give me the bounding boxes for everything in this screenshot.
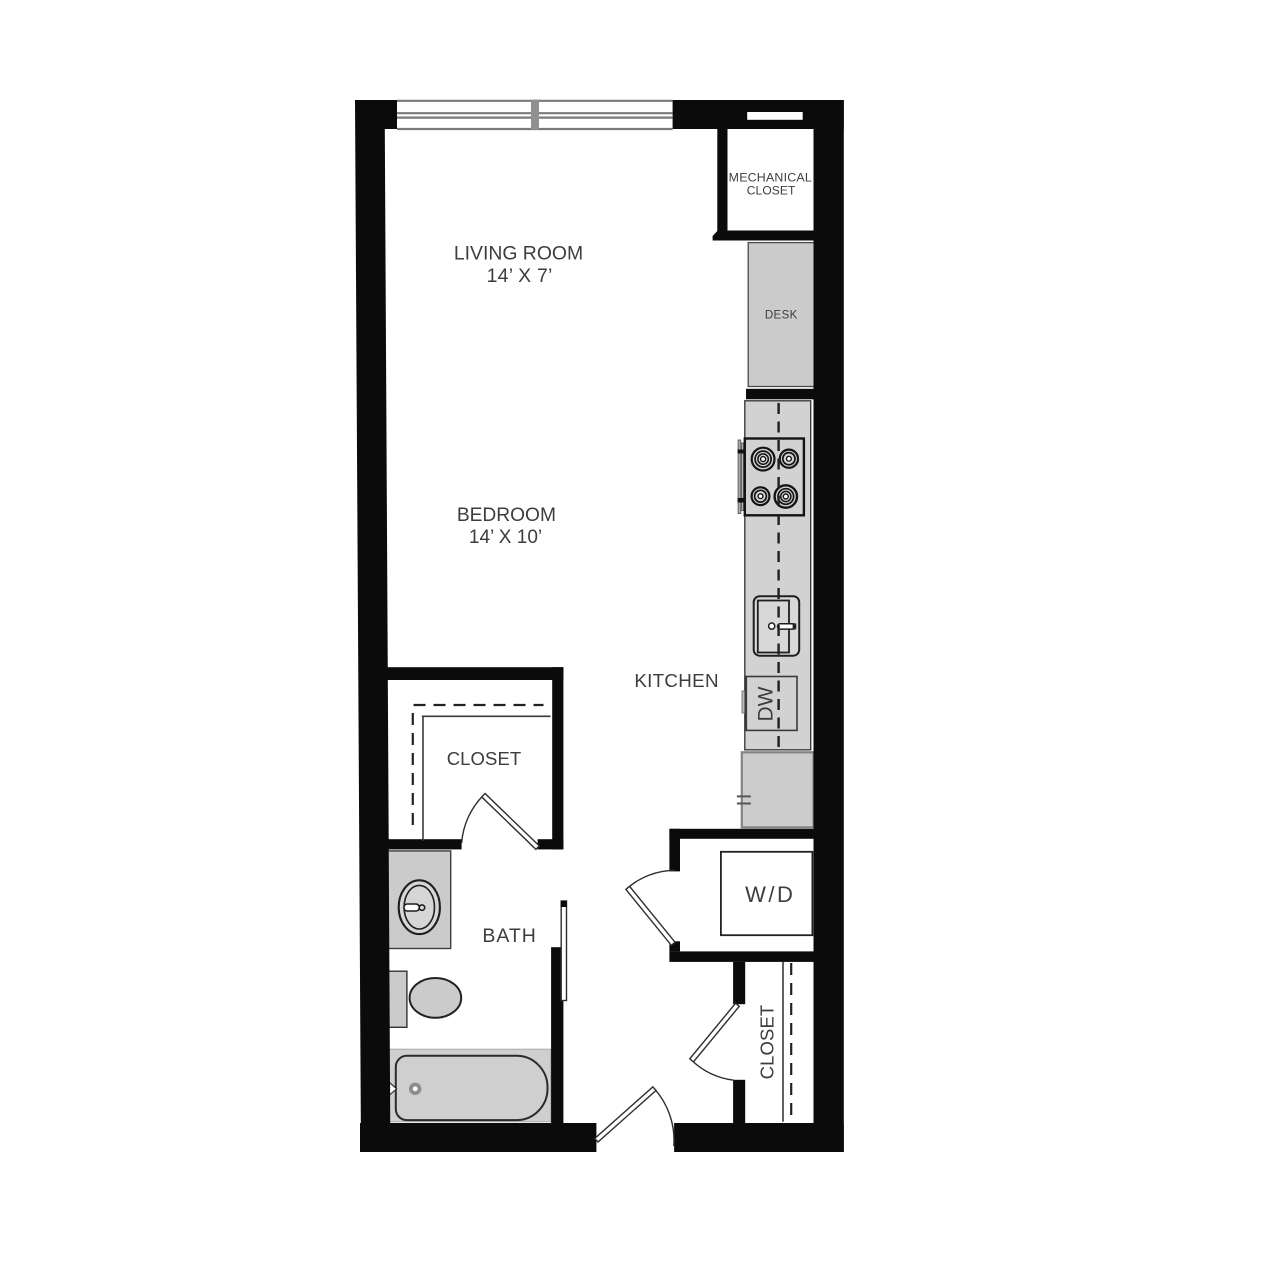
svg-text:KITCHEN: KITCHEN xyxy=(634,670,719,691)
svg-text:DESK: DESK xyxy=(765,310,798,322)
svg-text:CLOSET: CLOSET xyxy=(756,1005,777,1080)
svg-text:CLOSET: CLOSET xyxy=(447,748,522,769)
svg-text:14’ X 10’: 14’ X 10’ xyxy=(469,527,542,548)
svg-text:LIVING ROOM: LIVING ROOM xyxy=(454,243,583,265)
svg-text:14’ X 7’: 14’ X 7’ xyxy=(487,265,553,287)
svg-text:BEDROOM: BEDROOM xyxy=(457,505,556,526)
svg-text:MECHANICAL: MECHANICAL xyxy=(729,170,812,184)
svg-text:DW: DW xyxy=(755,686,778,721)
svg-text:CLOSET: CLOSET xyxy=(747,184,796,198)
svg-text:W/D: W/D xyxy=(745,882,795,907)
svg-text:BATH: BATH xyxy=(482,925,537,947)
